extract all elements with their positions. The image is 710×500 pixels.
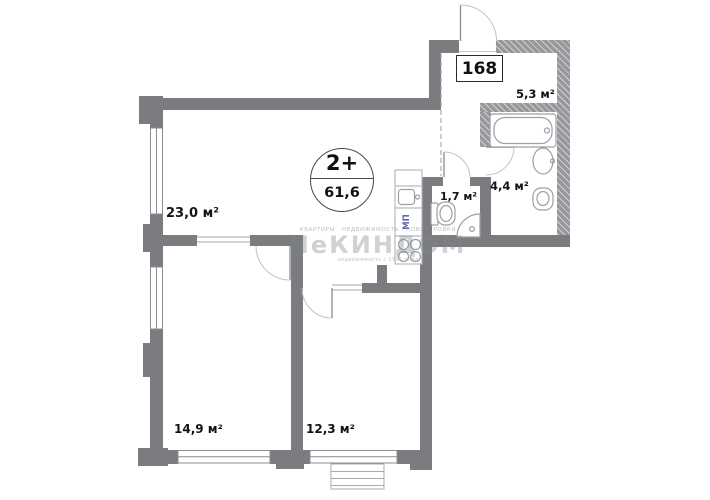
apartment-number: 168 — [456, 55, 503, 82]
label-bedroom2-area: 12,3 м² — [306, 422, 355, 436]
window-left-2 — [151, 267, 163, 329]
wc-corner-sink — [457, 214, 480, 237]
wc-door — [444, 152, 470, 178]
window-bottom-1 — [178, 451, 270, 464]
bathtub — [490, 114, 556, 147]
balcony-basket — [331, 464, 384, 489]
bathroom-door — [486, 147, 514, 175]
apartment-type-badge: 2+ 61,6 — [310, 148, 374, 212]
window-left-1 — [151, 128, 163, 214]
label-bedroom1-area: 14,9 м² — [174, 422, 223, 436]
bath-sink — [533, 148, 555, 174]
entrance-door — [461, 5, 497, 41]
label-hall-area: 5,3 м² — [516, 87, 555, 101]
bedroom2-door — [302, 288, 332, 318]
apartment-total-area: 61,6 — [324, 179, 360, 207]
floor-plan: МП КВАРТИРЫ · НЕДВИЖИМОСТЬ · НОВОСТРОЙКИ… — [0, 0, 710, 500]
opening-threshold-living — [197, 237, 250, 242]
plan-symbols-layer: МП — [0, 0, 710, 500]
apartment-type: 2+ — [326, 149, 358, 178]
label-bath-area: 4,4 м² — [490, 179, 529, 193]
window-bottom-2 — [310, 451, 397, 464]
washing-machine-slot-label: МП — [402, 214, 412, 230]
bath-toilet — [533, 188, 553, 210]
label-living-area: 23,0 м² — [166, 206, 219, 221]
opening-threshold-bedroom2 — [332, 285, 362, 290]
label-wc-area: 1,7 м² — [440, 190, 477, 203]
bedroom1-door — [256, 246, 290, 280]
wc-toilet — [431, 202, 455, 225]
